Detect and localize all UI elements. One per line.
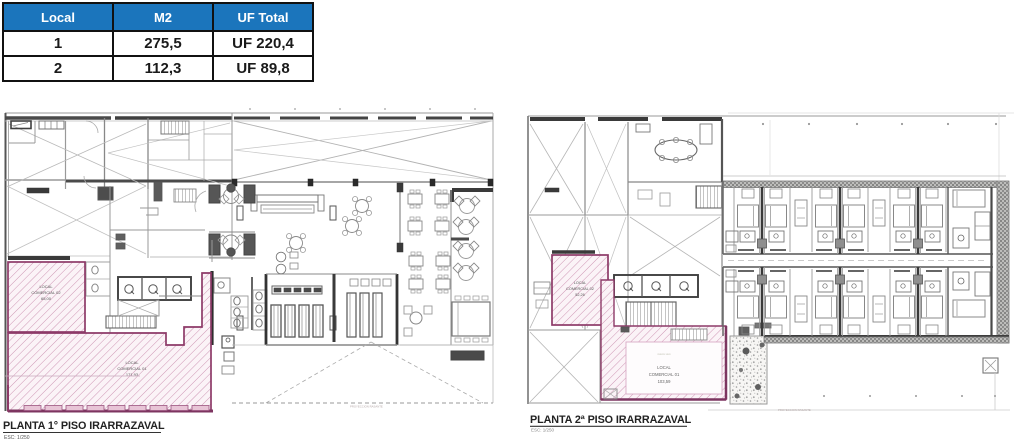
svg-text:65,00: 65,00 <box>41 296 52 301</box>
svg-text:COMERCIAL 01: COMERCIAL 01 <box>117 366 147 371</box>
svg-text:PROYECCION RASANTE: PROYECCION RASANTE <box>778 408 811 412</box>
svg-text:PLANTA 2ª PISO IRARRAZAVAL: PLANTA 2ª PISO IRARRAZAVAL <box>530 414 692 426</box>
svg-text:ESC: 1/250: ESC: 1/250 <box>4 435 30 441</box>
svg-text:COMERCIAL 02: COMERCIAL 02 <box>566 287 594 291</box>
svg-text:103,59: 103,59 <box>658 379 671 384</box>
svg-text:LOCAL: LOCAL <box>39 284 53 289</box>
svg-text:COMERCIAL 02: COMERCIAL 02 <box>31 290 61 295</box>
svg-text:xxxxxx xxxx: xxxxxx xxxx <box>657 353 671 356</box>
svg-text:52,26: 52,26 <box>575 293 585 297</box>
svg-text:LOCAL: LOCAL <box>657 365 671 370</box>
svg-text:PLANTA 1° PISO IRARRAZAVAL: PLANTA 1° PISO IRARRAZAVAL <box>3 420 165 432</box>
svg-text:PROYECCION RASANTE: PROYECCION RASANTE <box>350 405 383 409</box>
svg-text:COMERCIAL 01: COMERCIAL 01 <box>649 372 680 377</box>
svg-text:LOCAL: LOCAL <box>574 281 586 285</box>
svg-text:LOCAL: LOCAL <box>125 360 139 365</box>
svg-text:ESC: 1/250: ESC: 1/250 <box>531 428 555 433</box>
